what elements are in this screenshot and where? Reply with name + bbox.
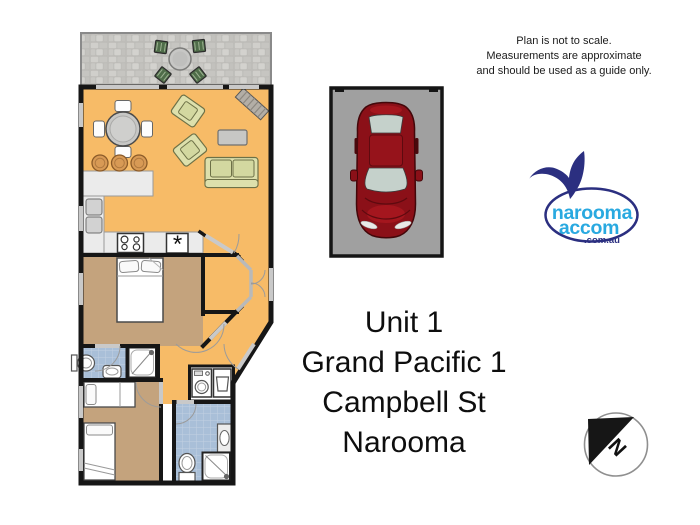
disclaimer-line: and should be used as a guide only.: [428, 64, 700, 79]
disclaimer-text: Plan is not to scale. Measurements are a…: [428, 34, 700, 79]
shower: [129, 348, 157, 378]
breakfast-bar: [81, 171, 153, 196]
side-mirror: [416, 170, 423, 181]
address-line-building: Grand Pacific 1: [281, 343, 527, 383]
single-bed: [84, 423, 115, 480]
deck: [81, 33, 271, 87]
coffee-table: [218, 130, 247, 145]
disclaimer-line: Measurements are approximate: [428, 49, 700, 64]
floor-plan: *: [58, 25, 284, 493]
address-line-street: Campbell St: [281, 383, 527, 423]
logo-text-domain: .com.au: [584, 235, 620, 246]
disclaimer-line: Plan is not to scale.: [428, 34, 700, 49]
single-bed: [84, 382, 135, 407]
washing-machine: [192, 369, 212, 397]
bar-stools: [92, 155, 147, 171]
shower: [203, 453, 231, 481]
toilet: [72, 355, 78, 371]
north-arrow-compass: N: [579, 408, 653, 482]
laundry-niche: [190, 366, 234, 401]
car-space: [329, 86, 444, 258]
laundry-tub: [214, 369, 232, 397]
rear-window: [369, 115, 403, 133]
double-bed: [117, 258, 163, 322]
address-text: Unit 1 Grand Pacific 1 Campbell St Naroo…: [281, 303, 527, 463]
address-line-town: Narooma: [281, 423, 527, 463]
address-line-unit: Unit 1: [281, 303, 527, 343]
side-mirror: [351, 170, 358, 181]
whale-tail-icon: [529, 151, 585, 199]
windshield: [365, 168, 407, 192]
car-roof: [370, 135, 403, 166]
narooma-accom-logo: narooma accom .com.au: [526, 144, 656, 248]
car: [351, 103, 423, 238]
stove: [118, 234, 144, 253]
page-canvas: *: [0, 0, 700, 525]
sofa: [205, 158, 258, 188]
